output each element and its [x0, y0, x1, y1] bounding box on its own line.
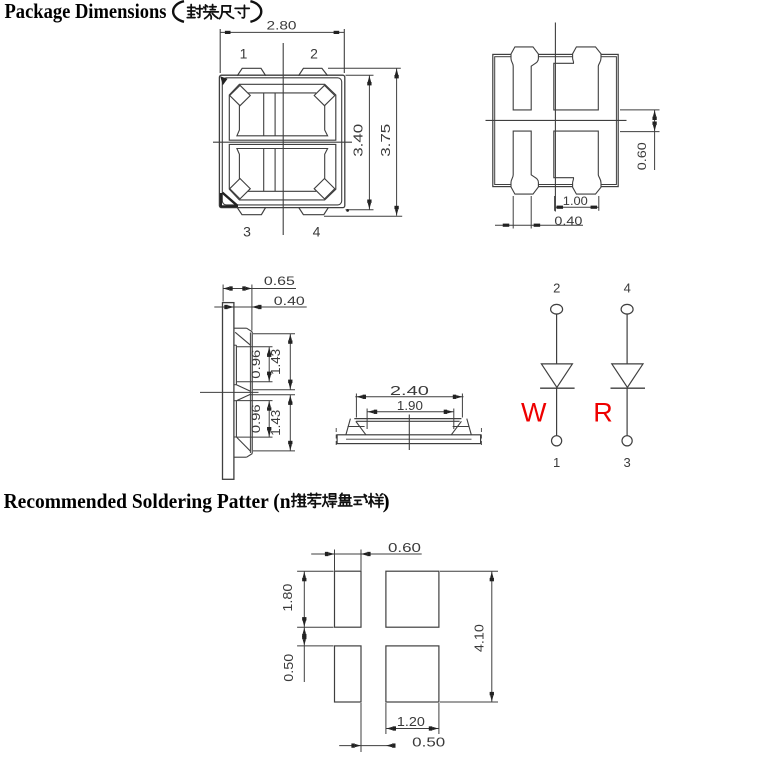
svg-text:0.96: 0.96 [249, 349, 263, 378]
svg-text:4: 4 [624, 280, 631, 295]
svg-text:R: R [593, 397, 613, 427]
svg-text:): ) [383, 489, 390, 513]
svg-text:1.80: 1.80 [281, 584, 295, 612]
svg-text:W: W [521, 397, 547, 427]
svg-text:3: 3 [623, 455, 630, 470]
svg-text:0.40: 0.40 [554, 214, 582, 228]
svg-text:1.00: 1.00 [563, 194, 588, 208]
svg-text:0.96: 0.96 [249, 404, 263, 433]
svg-text:0.50: 0.50 [282, 654, 296, 682]
svg-text:1: 1 [553, 455, 560, 470]
svg-text:0.40: 0.40 [274, 294, 305, 308]
svg-text:2.40: 2.40 [390, 383, 429, 398]
svg-text:4: 4 [313, 224, 321, 240]
svg-text:1.90: 1.90 [397, 398, 423, 413]
svg-text:0.65: 0.65 [264, 274, 295, 288]
svg-text:1: 1 [240, 46, 248, 62]
svg-text:2.80: 2.80 [267, 18, 297, 32]
svg-text:1.43: 1.43 [269, 410, 283, 436]
svg-text:3.40: 3.40 [351, 124, 365, 157]
svg-text:0.50: 0.50 [412, 735, 445, 749]
svg-text:1.20: 1.20 [397, 715, 425, 729]
svg-text:3.75: 3.75 [379, 124, 393, 157]
svg-text:Recommended Soldering Patter (: Recommended Soldering Patter (n [4, 489, 291, 513]
svg-text:0.60: 0.60 [388, 541, 421, 555]
svg-text:2: 2 [553, 280, 560, 295]
svg-text:Package Dimensions: Package Dimensions [5, 0, 167, 23]
svg-text:0.60: 0.60 [635, 142, 649, 170]
svg-text:2: 2 [310, 46, 318, 62]
svg-text:3: 3 [243, 224, 251, 240]
svg-text:4.10: 4.10 [473, 624, 487, 652]
svg-text:1.43: 1.43 [269, 349, 283, 375]
